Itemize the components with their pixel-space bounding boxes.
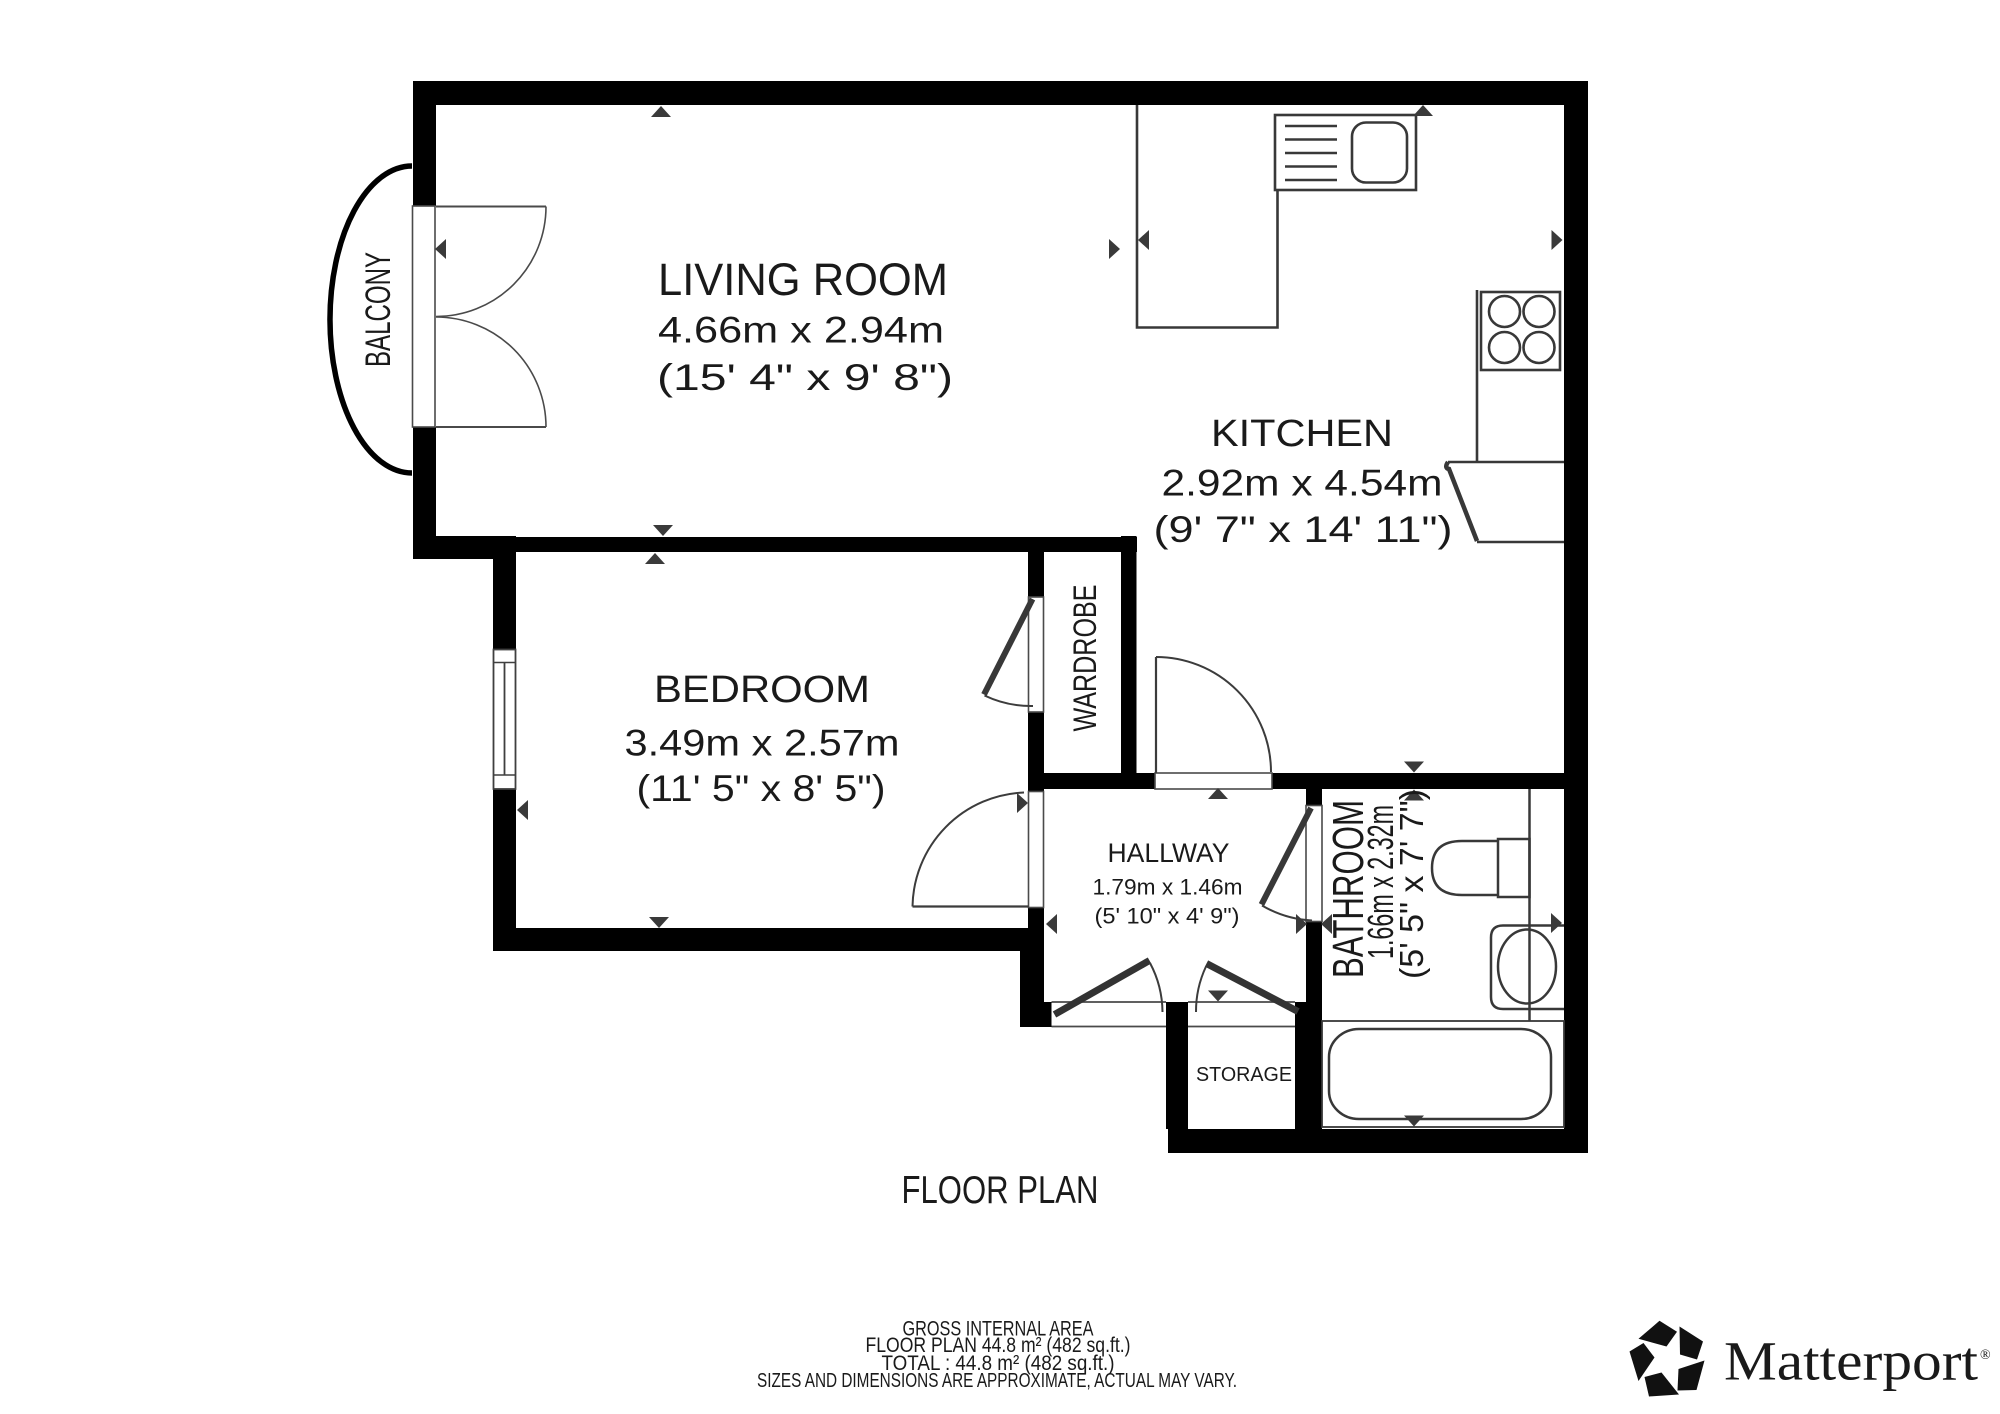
svg-text:(5' 5" x 7' 7"): (5' 5" x 7' 7") <box>1393 789 1430 979</box>
svg-text:®: ® <box>1980 1348 1991 1363</box>
svg-text:3.49m x 2.57m: 3.49m x 2.57m <box>625 723 900 764</box>
svg-text:FLOOR PLAN: FLOOR PLAN <box>902 1169 1099 1212</box>
svg-text:(11' 5" x 8' 5"): (11' 5" x 8' 5") <box>637 768 886 809</box>
svg-text:WARDROBE: WARDROBE <box>1067 585 1103 732</box>
svg-text:(5' 10" x 4' 9"): (5' 10" x 4' 9") <box>1095 904 1240 929</box>
svg-text:HALLWAY: HALLWAY <box>1108 838 1230 868</box>
svg-text:(9' 7" x 14' 11"): (9' 7" x 14' 11") <box>1154 509 1453 550</box>
svg-text:BALCONY: BALCONY <box>359 252 398 367</box>
svg-text:SIZES AND DIMENSIONS ARE APPRO: SIZES AND DIMENSIONS ARE APPROXIMATE, AC… <box>757 1370 1237 1392</box>
svg-text:KITCHEN: KITCHEN <box>1211 413 1393 455</box>
svg-text:2.92m x 4.54m: 2.92m x 4.54m <box>1162 463 1443 504</box>
svg-text:BEDROOM: BEDROOM <box>654 669 870 711</box>
svg-text:(15' 4" x 9' 8"): (15' 4" x 9' 8") <box>657 357 953 398</box>
svg-text:Matterport: Matterport <box>1724 1331 1978 1392</box>
svg-text:1.79m x 1.46m: 1.79m x 1.46m <box>1093 875 1243 900</box>
svg-text:LIVING ROOM: LIVING ROOM <box>658 254 948 305</box>
svg-text:4.66m x 2.94m: 4.66m x 2.94m <box>658 310 944 351</box>
svg-text:STORAGE: STORAGE <box>1196 1064 1292 1086</box>
